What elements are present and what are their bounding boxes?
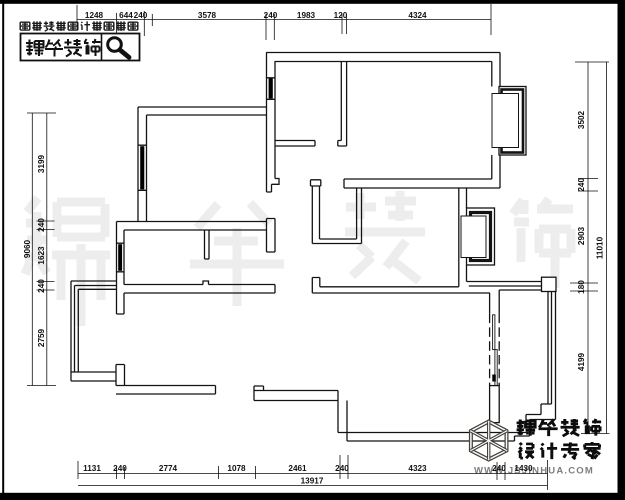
svg-text:240: 240	[492, 464, 506, 473]
svg-text:1248: 1248	[85, 11, 104, 20]
svg-text:240: 240	[264, 11, 278, 20]
svg-text:240: 240	[134, 11, 148, 20]
svg-text:644: 644	[119, 11, 133, 20]
svg-text:4199: 4199	[577, 352, 586, 371]
svg-text:2759: 2759	[37, 328, 46, 347]
svg-text:120: 120	[334, 11, 348, 20]
svg-text:240: 240	[113, 464, 127, 473]
svg-text:4324: 4324	[408, 11, 427, 20]
svg-text:11010: 11010	[596, 236, 605, 259]
svg-text:13917: 13917	[301, 477, 324, 486]
svg-text:2903: 2903	[577, 226, 586, 245]
svg-text:2774: 2774	[159, 464, 178, 473]
svg-text:9060: 9060	[23, 239, 32, 258]
svg-text:2461: 2461	[288, 464, 307, 473]
svg-text:3578: 3578	[198, 11, 217, 20]
svg-text:3502: 3502	[577, 110, 586, 129]
svg-text:240: 240	[335, 464, 349, 473]
svg-text:1623: 1623	[37, 246, 46, 265]
svg-text:240: 240	[577, 178, 586, 192]
svg-text:1131: 1131	[83, 464, 101, 473]
svg-text:3199: 3199	[37, 154, 46, 173]
svg-text:4323: 4323	[408, 464, 427, 473]
svg-text:240: 240	[37, 218, 46, 232]
svg-text:1983: 1983	[297, 11, 316, 20]
svg-text:180: 180	[577, 280, 586, 294]
svg-text:240: 240	[37, 279, 46, 293]
svg-text:1430: 1430	[514, 464, 533, 473]
svg-text:1078: 1078	[227, 464, 246, 473]
